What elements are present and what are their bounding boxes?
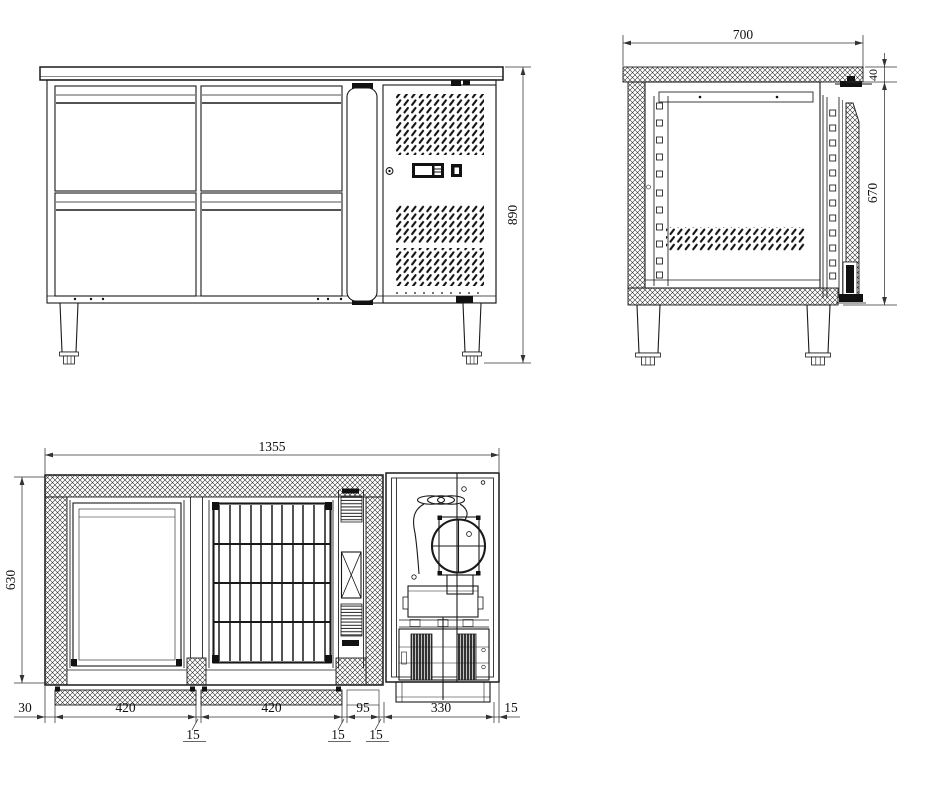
- countertop-section: [623, 67, 863, 82]
- interior-cavity: [645, 82, 820, 288]
- handle-strip: [347, 83, 377, 305]
- side-body-height-label: 670: [865, 183, 880, 204]
- drawer-bay-1-plan: [67, 500, 187, 670]
- leader-gap-3: 15: [366, 719, 389, 742]
- chain-gap2-label: 15: [331, 727, 345, 742]
- insulation-left: [45, 497, 67, 685]
- chain-bay2-label: 420: [261, 700, 282, 715]
- drawer-front-top-left: [55, 86, 196, 191]
- insulation-right: [366, 497, 383, 685]
- plan-depth-label: 630: [3, 570, 18, 591]
- countertop-front: [40, 67, 503, 80]
- front-height-label: 890: [505, 205, 520, 226]
- condenser: [399, 629, 489, 680]
- leg-side-front: [636, 305, 661, 365]
- evaporator-fins-bottom: [341, 604, 362, 636]
- plan-width-label: 1355: [259, 439, 286, 454]
- chain-right-wall-label: 15: [504, 700, 518, 715]
- vent-grille-upper: [396, 94, 484, 155]
- insulation-divider-block: [187, 658, 206, 685]
- mounting-tray: [399, 620, 489, 628]
- front-view: 890: [40, 67, 531, 364]
- dimension-interior-depth: 630: [3, 477, 48, 683]
- leader-gap-1: 15: [183, 719, 206, 742]
- door-hinge-top: [451, 80, 470, 86]
- side-top-thickness-label: 40: [866, 69, 880, 81]
- dimension-overall-height: 890: [484, 67, 531, 363]
- chain-gap1-label: 15: [186, 727, 200, 742]
- chain-bay1-label: 420: [115, 700, 136, 715]
- chain-gap3-label: 15: [369, 727, 383, 742]
- side-depth-label: 700: [733, 27, 754, 42]
- dimension-overall-width: 1355: [45, 439, 499, 474]
- insulated-bottom-wall: [628, 288, 838, 305]
- drawer-bay-2-wire-shelf: [206, 500, 336, 670]
- leg-front-left: [60, 303, 79, 364]
- drawer-front-bottom-left: [55, 193, 196, 296]
- drawer-front-top-right: [201, 86, 342, 191]
- leader-gap-2: 15: [328, 719, 351, 742]
- insulation-front-right-block: [336, 658, 366, 685]
- machine-front-panel: [383, 80, 496, 303]
- insulation-back: [45, 475, 383, 497]
- door-hinge-bottom-section: [836, 262, 866, 303]
- vent-grille-middle: [396, 205, 484, 243]
- drawer-front-bottom-right: [201, 193, 342, 296]
- fan-motor-box: [403, 586, 483, 617]
- panel-screw-dots: [396, 292, 479, 294]
- temperature-controller: [412, 163, 444, 178]
- base-screw-dots: [74, 298, 342, 300]
- insulated-back-wall: [628, 82, 645, 288]
- evaporator-fins-top: [341, 496, 362, 522]
- chain-evap-label: 95: [356, 700, 370, 715]
- door-lock: [386, 168, 393, 175]
- side-view: 700: [623, 27, 897, 365]
- leg-side-back: [806, 305, 831, 365]
- vent-grille-lower: [396, 248, 484, 286]
- technical-drawing-sheet: 890 700: [0, 0, 939, 787]
- door-hinge-bottom: [456, 296, 473, 303]
- chain-machine-label: 330: [431, 700, 452, 715]
- refrigerant-pipe: [414, 504, 424, 574]
- plan-view: 1355 630: [3, 439, 520, 742]
- evaporator-bay: [339, 489, 364, 669]
- chain-left-wall-label: 30: [18, 700, 32, 715]
- machine-compartment: [386, 473, 499, 702]
- door-liner-rack: [830, 110, 836, 279]
- power-switch: [451, 164, 462, 177]
- divider-rails: [191, 497, 203, 658]
- leg-front-right: [463, 303, 482, 364]
- compressor: [432, 516, 485, 595]
- interior-vent-louvres: [666, 227, 806, 251]
